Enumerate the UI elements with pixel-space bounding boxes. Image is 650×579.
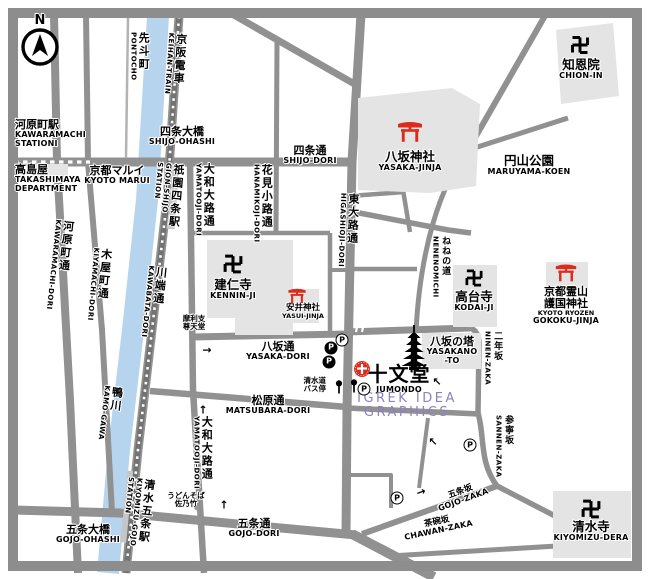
label-shijo-ohashi-line1: SHIJO-OHASHI [149, 138, 215, 147]
label-yamatooji-dori-south: 大和大路通YAMATOOJI-DORI [191, 416, 213, 489]
poi-dot [195, 506, 200, 511]
label-chion-in: 知恩院CHION-IN [559, 58, 603, 80]
yasaka-south-connector [403, 190, 410, 232]
label-sannen-zaka-line1: SANNEN-ZAKA [494, 415, 502, 478]
label-yasaka-dori-line1: YASAKA-DORI [246, 353, 310, 362]
label-yasakano-to: 八坂の塔YASAKANO-TO [427, 336, 478, 365]
torii-icon [553, 262, 579, 284]
torii-icon [286, 287, 308, 306]
minami-lane [347, 475, 391, 508]
label-ninen-zaka-line1: NINEN-ZAKA [483, 331, 491, 385]
label-yamatooji-dori-north: 大和大路通YAMATOOJI-DORI [193, 163, 215, 236]
compass-icon [23, 30, 57, 64]
label-kiyomizu-michi-busstop-line1: バス停 [304, 385, 327, 393]
label-chion-in-line1: CHION-IN [559, 72, 603, 81]
label-pontocho-line0: 先斗町 [137, 32, 149, 81]
label-watermark-line0: IGREK IDEA [357, 392, 457, 406]
label-hanamikoji-dori-line1: HANAMIKOJI-DORI [252, 164, 260, 243]
direction-arrow-icon: ↖ [428, 436, 437, 449]
label-nenenomichi: ねねの道NENENOMICHI [430, 236, 450, 298]
ninenzaka-south-lane [419, 418, 428, 488]
label-gokoku-jinja-line3: GOKOKU-JINJA [533, 317, 599, 326]
direction-arrow-icon: → [202, 344, 211, 357]
hanamikoji-dori-road [276, 40, 277, 233]
label-kawaramachi-station-line2: STATIONI [15, 140, 86, 149]
parking-icon: P [391, 492, 404, 505]
label-ninen-zaka: 二年坂NINEN-ZAKA [482, 331, 502, 385]
label-kennin-ji-line0: 建仁寺 [210, 278, 256, 292]
label-compass-n-line0: N [35, 14, 46, 28]
torii-icon [395, 119, 425, 145]
label-yamatooji-dori-south-line0: 大和大路通 [200, 416, 212, 489]
label-gojo-dori-line1: GOJO-DORI [229, 530, 280, 539]
label-yasaka-dori: 八坂通YASAKA-DORI [246, 341, 310, 362]
label-watermark-line1: GRAPHICS [357, 406, 457, 420]
label-maruyama-koen: 円山公園MARUYAMA-KOEN [488, 154, 571, 176]
label-maruyama-koen-line1: MARUYAMA-KOEN [488, 168, 571, 177]
label-kiyomizu-dera: 清水寺KIYOMIZU-DERA [553, 520, 628, 542]
direction-arrow-icon: ↑ [198, 404, 207, 417]
parking-icon: P [325, 342, 338, 355]
label-higashioji-dori-line1: HIGASHIOJI-DORI [336, 193, 346, 268]
label-yasui-jinja: 安井神社YASUI-JINJA [282, 304, 324, 320]
bus-stop-icon [335, 380, 343, 394]
jumondo-logo-icon [354, 361, 371, 378]
direction-arrow-icon: ↑ [219, 499, 228, 512]
parking-icon: P [464, 439, 477, 452]
label-yasaka-jinja-line1: YASAKA-JINJA [378, 164, 441, 173]
label-yamatooji-dori-north-line1: YAMATOOJI-DORI [194, 163, 202, 236]
manji-icon [464, 268, 485, 289]
label-marishisontendo-line1: 尊天堂 [183, 323, 206, 331]
label-kodai-ji-line1: KODAI-JI [454, 304, 493, 313]
label-shijo-ohashi: 四条大橋SHIJO-OHASHI [149, 126, 215, 147]
kodaiji-approach-road [354, 212, 471, 233]
label-shijo-dori: 四条通SHIJO-DORI [283, 145, 336, 166]
label-yasakano-to-line2: -TO [427, 357, 478, 366]
label-yamatooji-dori-south-line1: YAMATOOJI-DORI [192, 416, 200, 489]
label-takashimaya-line2: DEPARTMENT [15, 185, 81, 194]
label-gion-shijo-station: 祇園四条駅GION-SHIJOSTATION [149, 162, 186, 229]
label-sannen-zaka-line0: 参寧坂 [502, 415, 512, 478]
label-hanamikoji-dori: 花見小路通HANAMIKOJI-DORI [251, 164, 273, 243]
manji-icon [579, 497, 602, 520]
label-hanamikoji-dori-line0: 花見小路通 [260, 164, 272, 243]
label-kodai-ji: 高台寺KODAI-JI [454, 290, 493, 312]
label-gojo-ohashi-line1: GOJO-OHASHI [56, 536, 120, 545]
manji-icon [569, 34, 591, 56]
label-pontocho: 先斗町PONTOCHO [128, 32, 150, 81]
label-kodai-ji-line0: 高台寺 [454, 290, 493, 304]
label-pontocho-line1: PONTOCHO [129, 32, 137, 81]
label-kiyomizu-dera-line0: 清水寺 [553, 520, 628, 534]
label-gojo-dori: 五条通GOJO-DORI [229, 518, 280, 539]
label-matsubara-dori-line1: MATSUBARA-DORI [226, 407, 311, 416]
label-marishisontendo: 摩利支尊天堂 [183, 315, 206, 331]
label-kyoto-marui-line1: KYOTO MARUI [84, 177, 150, 186]
kyoto-map: N河原町駅KAWARAMACHISTATIONI高島屋TAKASHIMAYADE… [0, 0, 650, 579]
label-nenenomichi-line1: NENENOMICHI [431, 236, 439, 298]
label-kiyomizu-michi-busstop: 清水道バス停 [304, 377, 327, 393]
label-sannen-zaka: 参寧坂SANNEN-ZAKA [493, 415, 513, 478]
label-shijo-dori-line1: SHIJO-DORI [283, 157, 336, 166]
label-matsubara-dori: 松原通MATSUBARA-DORI [226, 395, 311, 416]
label-keihan-train: 京阪電車KEIHAN-TRAIN [162, 32, 189, 95]
label-ninen-zaka-line0: 二年坂 [491, 331, 501, 385]
direction-arrow-icon: ↖ [432, 376, 441, 389]
pagoda-icon [401, 325, 428, 371]
label-kawaramachi-station: 河原町駅KAWARAMACHISTATIONI [15, 119, 86, 148]
label-nenenomichi-line0: ねねの道 [439, 236, 449, 298]
manji-icon [221, 252, 244, 275]
label-kiyomizu-dera-line1: KIYOMIZU-DERA [553, 534, 628, 543]
label-gojo-ohashi: 五条大橋GOJO-OHASHI [56, 524, 120, 545]
label-watermark: IGREK IDEAGRAPHICS [357, 392, 457, 420]
kiyomizu-approach-road [497, 486, 557, 517]
label-kyoto-marui: 京都マルイKYOTO MARUI [84, 165, 150, 186]
label-yasaka-jinja-line0: 八坂神社 [378, 150, 441, 164]
label-kennin-ji: 建仁寺KENNIN-JI [210, 278, 256, 300]
label-yamatooji-dori-north-line0: 大和大路通 [202, 163, 214, 236]
label-chion-in-line0: 知恩院 [559, 58, 603, 72]
parking-icon: P [336, 334, 349, 347]
label-gokoku-jinja: 京都霊山護国神社KYOTO RYOZENGOKOKU-JINJA [533, 286, 599, 325]
label-yasui-jinja-line1: YASUI-JINJA [282, 313, 324, 320]
label-compass-n: N [35, 14, 46, 28]
label-kennin-ji-line1: KENNIN-JI [210, 292, 256, 301]
label-higashioji-dori: 東大路通HIGASHIOJI-DORI [335, 193, 360, 268]
nawate-diagonal-road [232, 14, 358, 86]
chawan-zaka-road [390, 546, 557, 556]
label-maruyama-koen-line0: 円山公園 [488, 154, 571, 168]
label-takashimaya: 高島屋TAKASHIMAYADEPARTMENT [15, 164, 81, 193]
label-yasaka-jinja: 八坂神社YASAKA-JINJA [378, 150, 441, 172]
higashioji-dori-road [346, 14, 361, 537]
parking-icon: P [358, 383, 371, 396]
label-gokoku-jinja-line1: 護国神社 [533, 298, 599, 310]
parking-icon: P [323, 356, 336, 369]
